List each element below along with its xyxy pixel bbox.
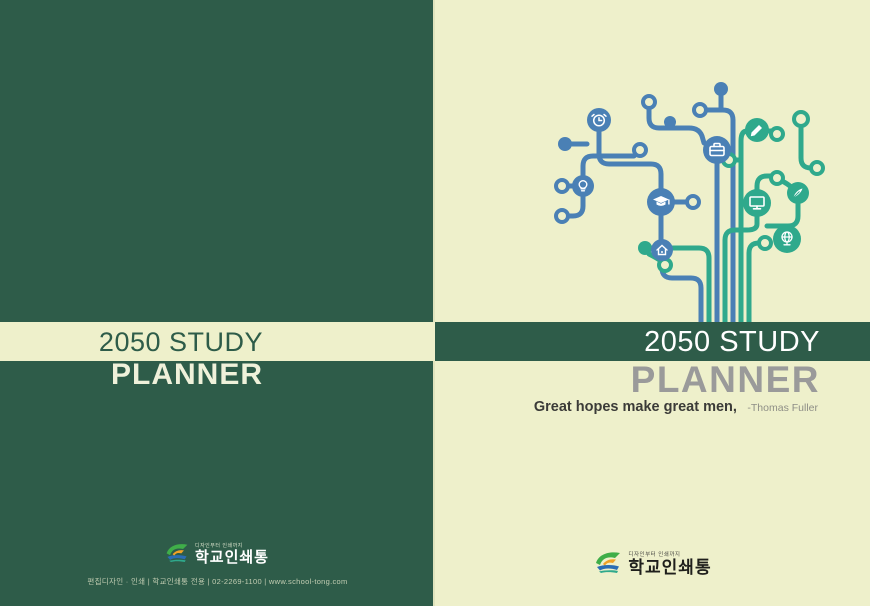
quote-author: -Thomas Fuller xyxy=(747,402,818,414)
back-cover-title-line2: PLANNER xyxy=(111,358,263,392)
node-ring xyxy=(794,112,808,126)
planner-cover-spread: 2050 STUDY PLANNER 디자인부터 인쇄까지 학교인쇄통 xyxy=(0,0,870,606)
circuit-tree-artwork xyxy=(435,0,870,322)
back-cover-title-line1: 2050 STUDY xyxy=(99,327,263,358)
briefcase-icon xyxy=(703,136,731,164)
node-ring xyxy=(556,180,568,192)
node-ring xyxy=(771,128,783,140)
publisher-name: 학교인쇄통 xyxy=(628,558,711,578)
node-dot xyxy=(558,137,572,151)
back-cover-publisher-logo: 디자인부터 인쇄까지 학교인쇄통 xyxy=(0,541,433,569)
front-cover-publisher-logo: 디자인부터 인쇄까지 학교인쇄통 xyxy=(435,549,870,580)
node-ring xyxy=(694,104,706,116)
node-dot xyxy=(714,82,728,96)
node-ring xyxy=(771,172,783,184)
publisher-book-logo-icon xyxy=(593,549,623,580)
light-bulb-icon xyxy=(572,175,594,197)
graduation-cap-icon xyxy=(647,188,675,216)
publisher-name: 학교인쇄통 xyxy=(195,549,269,566)
back-cover-panel: 2050 STUDY PLANNER 디자인부터 인쇄까지 학교인쇄통 xyxy=(0,0,435,606)
front-cover-title-line1: 2050 STUDY xyxy=(644,326,820,359)
node-dot xyxy=(664,116,676,128)
node-ring xyxy=(759,237,771,249)
alarm-clock-icon xyxy=(587,108,611,132)
quote-text: Great hopes make great men, xyxy=(534,399,737,415)
publisher-contact-line: 편집디자인 · 인쇄 | 학교인쇄통 전용 | 02-2269-1100 | w… xyxy=(0,576,435,587)
publisher-book-logo-icon xyxy=(164,541,190,569)
front-cover-panel: 2050 STUDY PLANNER Great hopes make grea… xyxy=(435,0,870,606)
front-cover-title-line2: PLANNER xyxy=(631,359,820,401)
writing-hand-icon xyxy=(787,182,809,204)
node-dot xyxy=(638,241,652,255)
monitor-icon xyxy=(743,189,771,217)
front-cover-quote: Great hopes make great men, -Thomas Full… xyxy=(534,398,818,416)
node-ring xyxy=(811,162,823,174)
globe-icon xyxy=(773,225,801,253)
node-ring xyxy=(687,196,699,208)
node-ring xyxy=(634,144,646,156)
node-ring xyxy=(556,210,568,222)
pencil-icon xyxy=(745,118,769,142)
home-icon xyxy=(651,239,673,261)
node-ring xyxy=(643,96,655,108)
